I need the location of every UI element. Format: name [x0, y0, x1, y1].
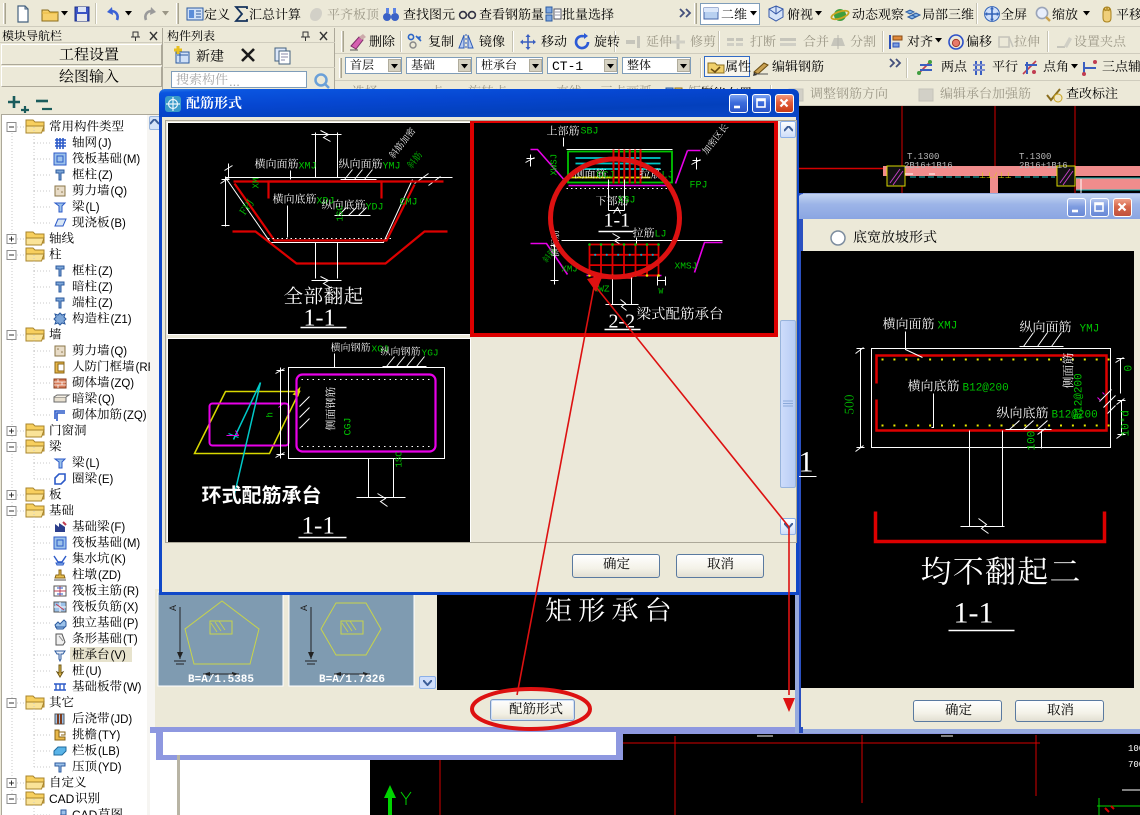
- svg-text:(P): (P): [123, 618, 139, 630]
- svg-text:CGJ: CGJ: [344, 417, 355, 435]
- svg-text:(Q): (Q): [98, 394, 115, 406]
- svg-text:CAD: CAD: [72, 808, 98, 815]
- svg-text:(Z1): (Z1): [111, 314, 132, 326]
- svg-text:(ZQ): (ZQ): [111, 378, 135, 390]
- svg-text:(W): (W): [123, 682, 142, 694]
- svg-text:YDJ: YDJ: [366, 203, 384, 214]
- svg-text:(J): (J): [98, 138, 112, 150]
- svg-text:(X): (X): [123, 602, 139, 614]
- svg-text:2B16+1B16: 2B16+1B16: [904, 161, 953, 171]
- svg-text:(V): (V): [111, 650, 127, 662]
- svg-text:B=A/1.7326: B=A/1.7326: [319, 674, 385, 686]
- svg-text:(JD): (JD): [111, 714, 133, 726]
- svg-text:(B): (B): [111, 218, 127, 230]
- svg-text:0: 0: [1124, 365, 1136, 372]
- svg-text:(K): (K): [111, 554, 127, 566]
- svg-text:(Z): (Z): [98, 298, 113, 310]
- svg-text:(YD): (YD): [98, 762, 122, 774]
- svg-text:XGJ: XGJ: [372, 344, 389, 355]
- svg-text:1-1: 1-1: [302, 513, 335, 540]
- svg-text:h: h: [266, 412, 276, 417]
- svg-text:100: 100: [1027, 431, 1039, 451]
- svg-text:(Z): (Z): [98, 282, 113, 294]
- svg-text:A: A: [300, 605, 311, 611]
- svg-text:XMJ: XMJ: [938, 321, 958, 333]
- svg-text:W: W: [659, 288, 664, 297]
- svg-text:(LB): (LB): [98, 746, 120, 758]
- svg-text:(M): (M): [123, 154, 140, 166]
- svg-text:(M): (M): [123, 538, 140, 550]
- svg-text:1SC: 1SC: [336, 205, 346, 222]
- svg-text:(Q): (Q): [111, 346, 128, 358]
- svg-text:XWSJ: XWSJ: [550, 154, 560, 176]
- svg-text:XBJ: XBJ: [618, 196, 636, 207]
- svg-text:XM: XM: [252, 178, 262, 189]
- svg-text:(E): (E): [98, 474, 114, 486]
- svg-text:(Q): (Q): [111, 186, 128, 198]
- svg-text:1-1: 1-1: [604, 210, 631, 232]
- svg-text:XMSJ: XMSJ: [675, 261, 698, 272]
- svg-text:1: 1: [799, 446, 814, 479]
- svg-text:(L): (L): [86, 458, 100, 470]
- svg-text:XMJ: XMJ: [299, 162, 317, 173]
- svg-text:LJ: LJ: [655, 230, 667, 241]
- svg-text:10*d: 10*d: [1121, 410, 1133, 436]
- svg-text:B12@200: B12@200: [963, 383, 1009, 395]
- svg-text:XWZ: XWZ: [593, 284, 610, 295]
- svg-text:1-1: 1-1: [954, 597, 994, 630]
- svg-text:FPJ: FPJ: [690, 181, 708, 192]
- svg-text:CAD: CAD: [49, 792, 75, 806]
- svg-text:(T): (T): [123, 634, 138, 646]
- svg-text:B12@200: B12@200: [1074, 373, 1086, 419]
- svg-text:(U): (U): [86, 666, 102, 678]
- svg-text:CMJ: CMJ: [400, 198, 418, 209]
- svg-text:100: 100: [1128, 744, 1140, 754]
- svg-text:(F): (F): [111, 522, 126, 534]
- svg-text:(RF: (RF: [136, 362, 151, 374]
- svg-text:700: 700: [1128, 760, 1140, 770]
- svg-text:(R): (R): [123, 586, 139, 598]
- svg-text:XMJ: XMJ: [562, 265, 578, 275]
- svg-text:(L): (L): [86, 202, 100, 214]
- svg-text:(TY): (TY): [98, 730, 121, 742]
- svg-text:(Z): (Z): [98, 266, 113, 278]
- svg-text:(Z): (Z): [98, 170, 113, 182]
- svg-text:B=A/1.5385: B=A/1.5385: [188, 674, 254, 686]
- svg-text:LJ: LJ: [662, 171, 674, 182]
- svg-text:(ZD): (ZD): [98, 570, 121, 582]
- svg-text:A: A: [169, 605, 180, 611]
- svg-text:YMJ: YMJ: [1080, 324, 1100, 336]
- svg-text:1SC: 1SC: [395, 451, 405, 468]
- svg-text:SBJ: SBJ: [581, 127, 599, 138]
- svg-text:⊥⊥⁄⊥⊥: ⊥⊥⁄⊥⊥: [979, 172, 1012, 181]
- svg-text:YMJ: YMJ: [383, 162, 401, 173]
- svg-text:CCJ: CCJ: [597, 171, 615, 182]
- svg-text:(ZQ): (ZQ): [123, 410, 147, 422]
- svg-text:2B16+1B16: 2B16+1B16: [1019, 161, 1068, 171]
